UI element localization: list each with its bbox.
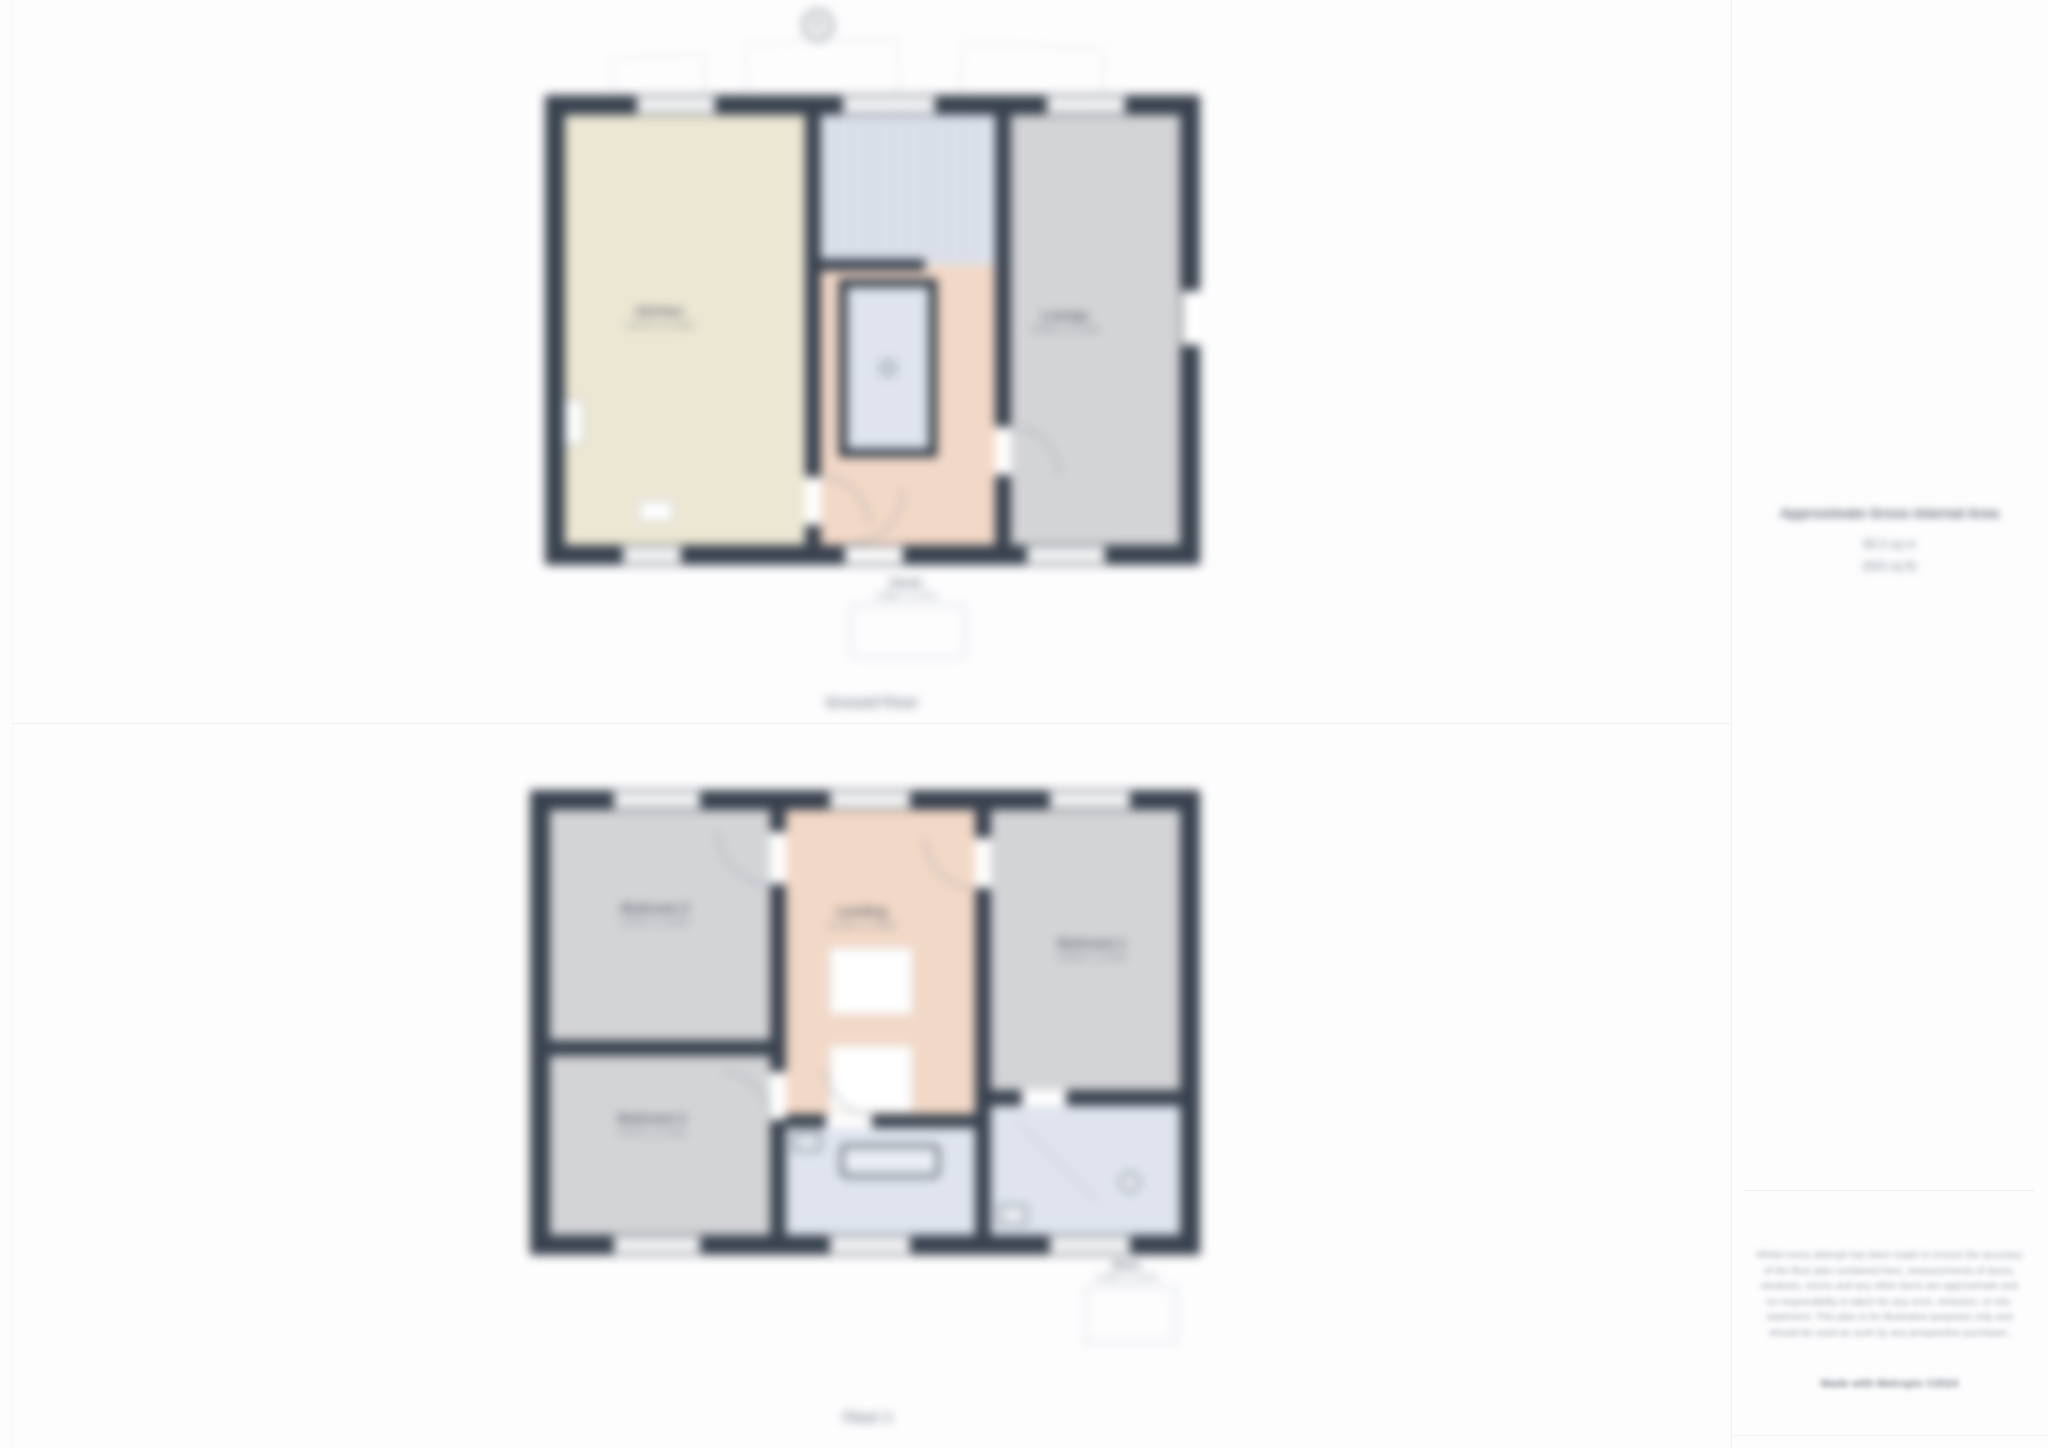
bedroom3-room [550,1056,770,1235]
annex-outline-porch [850,604,966,658]
ground-floor-plan [545,95,1200,565]
first-floor-caption: Floor 1 [844,1409,893,1425]
bathtub-icon [842,1146,938,1176]
kitchen-room [565,115,805,545]
ground-floor-caption: Ground Floor [825,694,918,710]
kitchen-unit [639,501,673,521]
compass-label: N [814,19,822,31]
area-metric: 85.5 sq m [1731,537,2048,551]
annex-label-porch: Porch 1.98m x 1.07m [875,577,938,602]
porch-name: Porch [875,577,938,590]
stairwell-void [830,1046,912,1112]
annex-label-store: Store 1.40m x 1.07m [1095,1259,1158,1284]
bedroom2-room [550,810,770,1040]
first-floor-plan [530,790,1200,1255]
section-divider [12,723,1731,724]
credit-logo: Made with Metropix ©2024 [1731,1378,2048,1390]
area-title: Approximate Gross Internal Area [1731,505,2048,521]
sidebar: Approximate Gross Internal Area 85.5 sq … [1731,0,2048,1448]
area-imperial: (920 sq ft) [1731,559,2048,573]
disclaimer-text: Whilst every attempt has been made to en… [1755,1248,2024,1341]
area-summary: Approximate Gross Internal Area 85.5 sq … [1731,505,2048,573]
porch-dims: 1.98m x 1.07m [875,591,938,602]
store-name: Store [1095,1259,1158,1272]
store-dims: 1.40m x 1.07m [1095,1273,1158,1284]
floorplan-page: N [0,0,2048,1448]
north-compass-icon: N [803,10,833,40]
shower-drain-icon [1121,1173,1139,1191]
sink-icon [794,1134,820,1150]
toilet-icon [1000,1206,1026,1224]
under-stairs-cupboard [843,283,933,453]
bedroom1-room [991,810,1180,1090]
chimney-recess [565,400,583,444]
left-frame-line [12,0,13,1448]
stairwell-void [830,948,912,1014]
annex-outline-store [1085,1286,1177,1344]
lounge-room [1011,115,1180,545]
